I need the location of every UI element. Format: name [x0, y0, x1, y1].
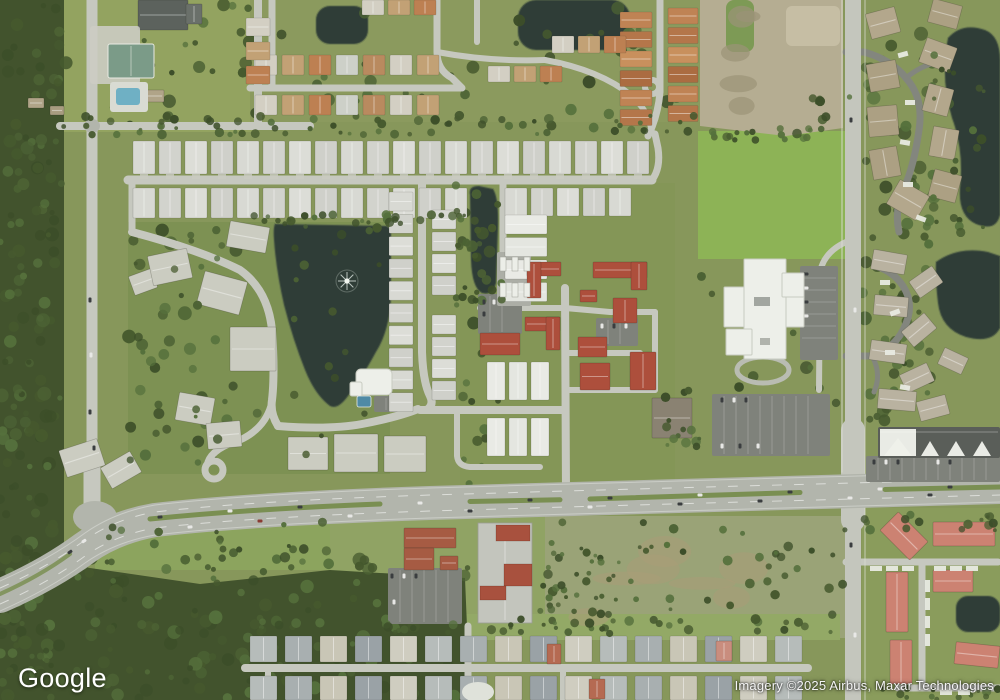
imagery-attribution: Imagery ©2025 Airbus, Maxar Technologies [735, 678, 994, 693]
map-viewport[interactable]: Google Imagery ©2025 Airbus, Maxar Techn… [0, 0, 1000, 700]
satellite-imagery[interactable] [0, 0, 1000, 700]
google-logo[interactable]: Google [18, 663, 107, 694]
